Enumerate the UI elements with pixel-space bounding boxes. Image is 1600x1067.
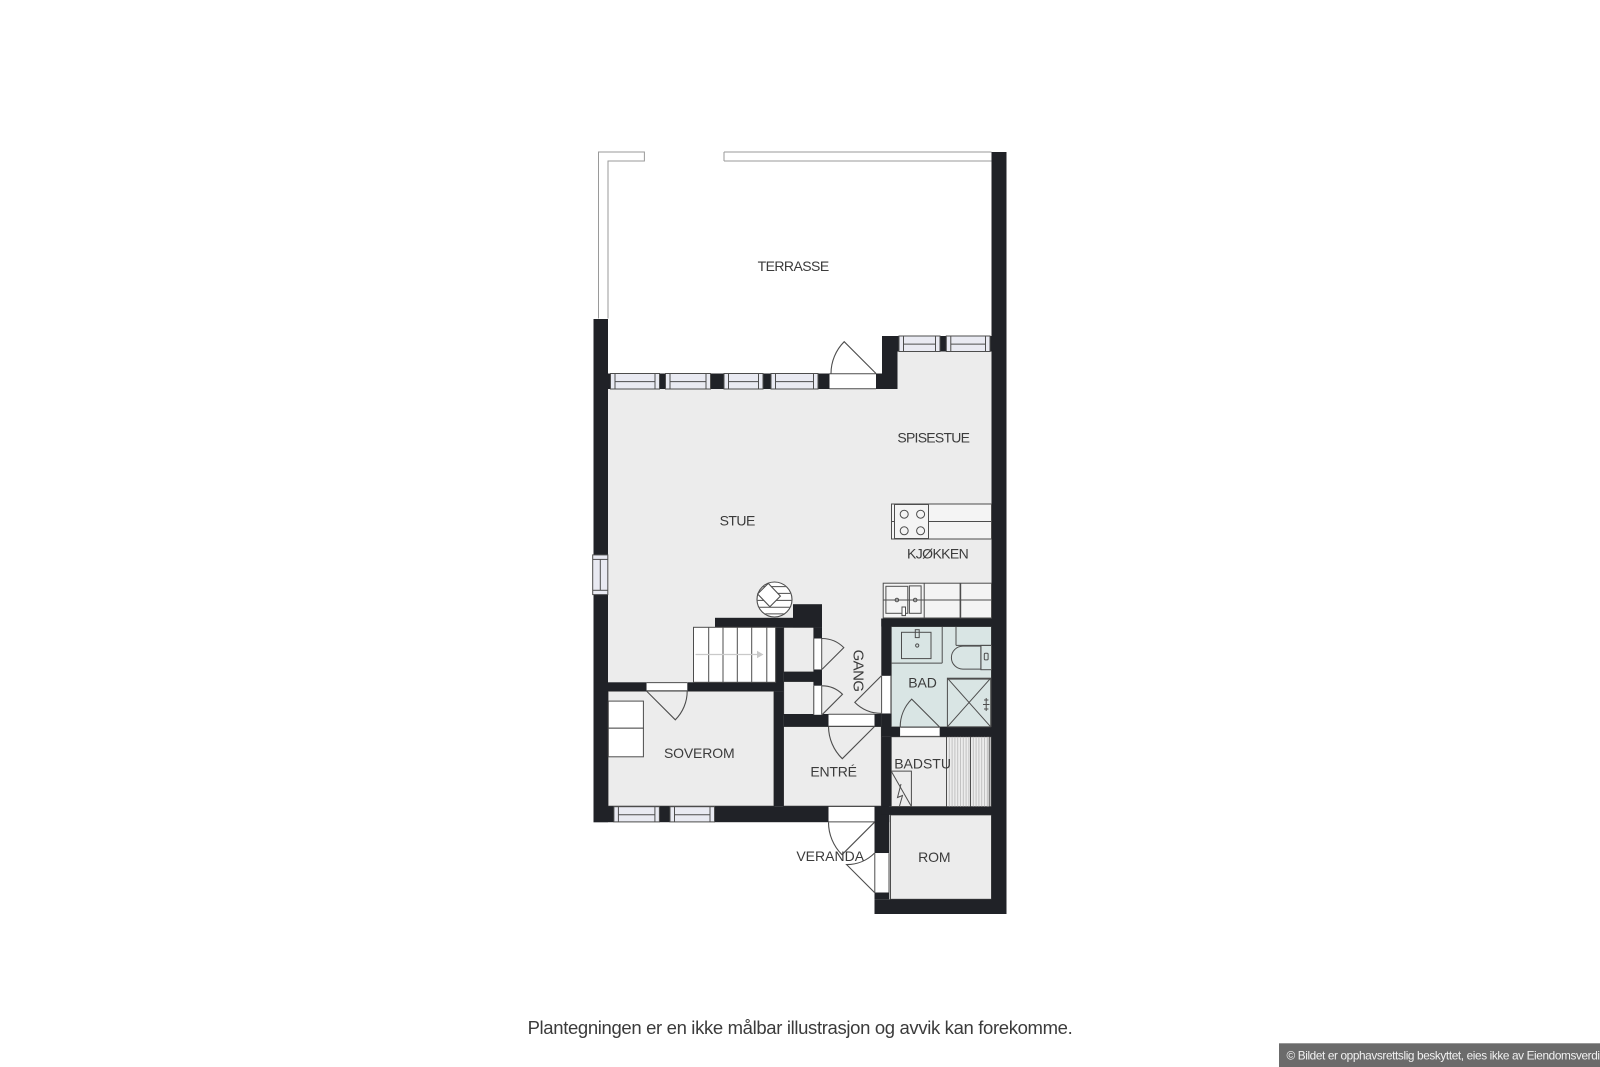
svg-text:VERANDA: VERANDA [796,848,864,864]
svg-text:KJØKKEN: KJØKKEN [907,546,968,562]
svg-text:SOVEROM: SOVEROM [664,745,735,761]
svg-text:BADSTU: BADSTU [894,755,951,771]
svg-text:Plantegningen er en ikke målba: Plantegningen er en ikke målbar illustra… [528,1017,1073,1038]
svg-text:© Bildet er opphavsrettslig be: © Bildet er opphavsrettslig beskyttet, e… [1287,1049,1600,1063]
svg-text:TERRASSE: TERRASSE [758,258,829,274]
svg-text:ENTRÉ: ENTRÉ [810,764,856,780]
svg-text:SPISESTUE: SPISESTUE [897,430,969,446]
svg-text:BAD: BAD [908,675,937,691]
svg-text:ROM: ROM [918,849,950,865]
svg-text:GANG: GANG [850,650,867,692]
svg-text:STUE: STUE [720,512,755,528]
